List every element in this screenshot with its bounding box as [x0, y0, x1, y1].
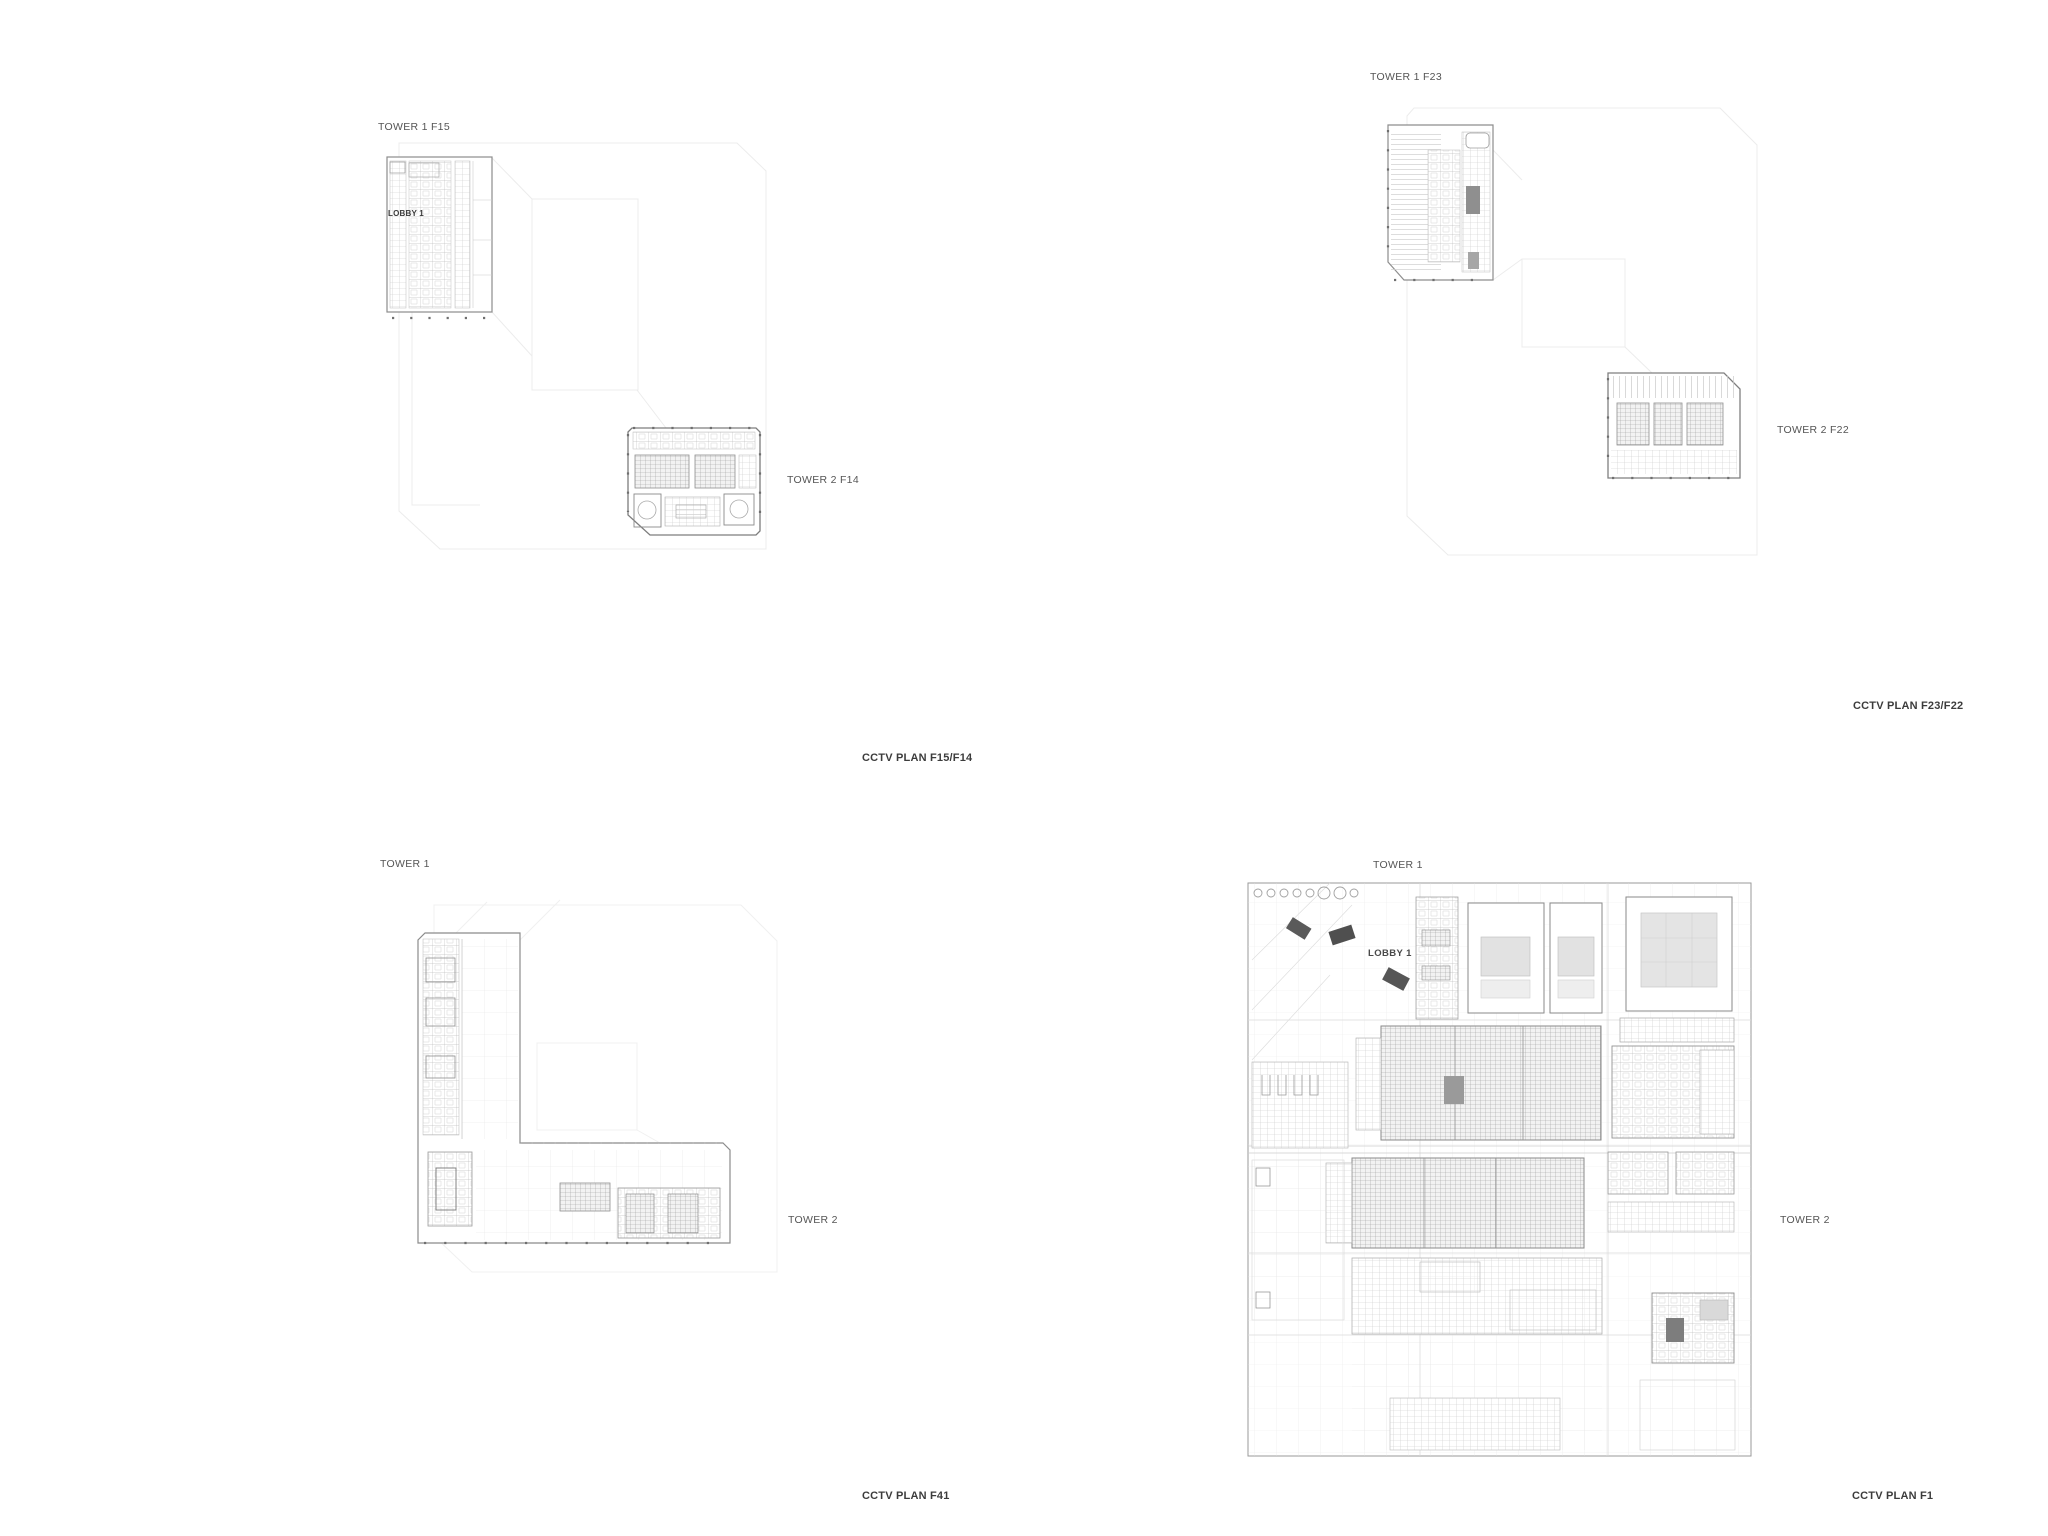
panel-f41-drawing: [418, 900, 777, 1272]
tower2-label: TOWER 2: [1780, 1214, 1830, 1226]
tower1-plan-f15: [387, 157, 492, 318]
panel-f1-drawing: [1248, 883, 1751, 1456]
tower2-plan-f14: [628, 428, 760, 535]
tower2-label: TOWER 2 F14: [787, 474, 859, 486]
floor-plan-drawings: [0, 0, 2048, 1536]
plan-caption: CCTV PLAN F1: [1852, 1490, 1933, 1502]
plan-caption: CCTV PLAN F15/F14: [862, 752, 972, 764]
lobby-label: LOBBY 1: [1368, 948, 1412, 959]
tower2-plan-f22: [1608, 373, 1740, 478]
tower1-label: TOWER 1: [1373, 859, 1423, 871]
plan-caption: CCTV PLAN F23/F22: [1853, 700, 1963, 712]
tower2-label: TOWER 2 F22: [1777, 424, 1849, 436]
plan-caption: CCTV PLAN F41: [862, 1490, 950, 1502]
tower1-label: TOWER 1 F15: [378, 121, 450, 133]
lobby-label: LOBBY 1: [388, 209, 424, 218]
panel-f23-f22-drawing: [1388, 108, 1757, 555]
tower1-plan-f23: [1388, 125, 1493, 280]
panel-f15-f14-drawing: [387, 143, 766, 549]
tower-plan-f41: [418, 933, 730, 1243]
tower1-label: TOWER 1 F23: [1370, 71, 1442, 83]
tower2-label: TOWER 2: [788, 1214, 838, 1226]
floor-plan-sheet: TOWER 1 F15 LOBBY 1 TOWER 2 F14 CCTV PLA…: [0, 0, 2048, 1536]
tower1-label: TOWER 1: [380, 858, 430, 870]
